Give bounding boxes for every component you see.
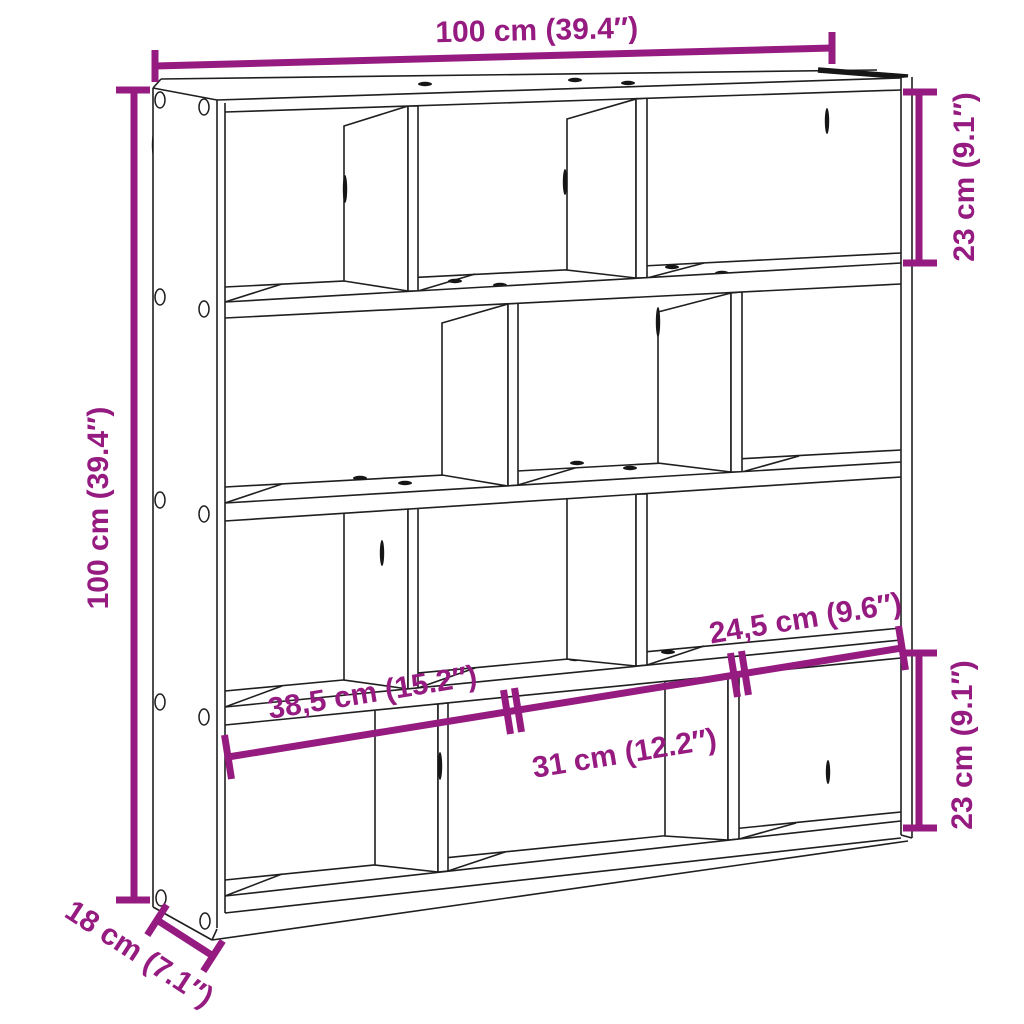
row2-dividers [442, 292, 742, 486]
dimension-label-top-width: 100 cm (39.4″) [435, 12, 639, 50]
bottom-board [212, 821, 908, 940]
dimension-label-right-top-cell: 23 cm (9.1″) [948, 92, 981, 261]
compartment-floor-back-edges [225, 253, 901, 880]
wall-cube-shelf-diagram: 100 cm (39.4″) 100 cm (39.4″) 23 cm (9.1… [0, 0, 1024, 1024]
right-side-panel [901, 77, 912, 838]
dimension-label-left-height: 100 cm (39.4″) [82, 407, 115, 610]
dimension-label-right-bottom-cell: 23 cm (9.1″) [946, 660, 979, 829]
dimension-line-left-height [116, 90, 150, 900]
shelf-board-1 [225, 263, 901, 318]
dimension-label-cell-width-right: 24,5 cm (9.6″) [707, 587, 904, 651]
left-side-panel [153, 88, 225, 940]
row1-dividers [344, 98, 647, 291]
shelf-drawing [152, 70, 912, 940]
product-dimension-diagram: 100 cm (39.4″) 100 cm (39.4″) 23 cm (9.1… [0, 0, 1024, 1024]
row3-dividers [344, 494, 647, 689]
